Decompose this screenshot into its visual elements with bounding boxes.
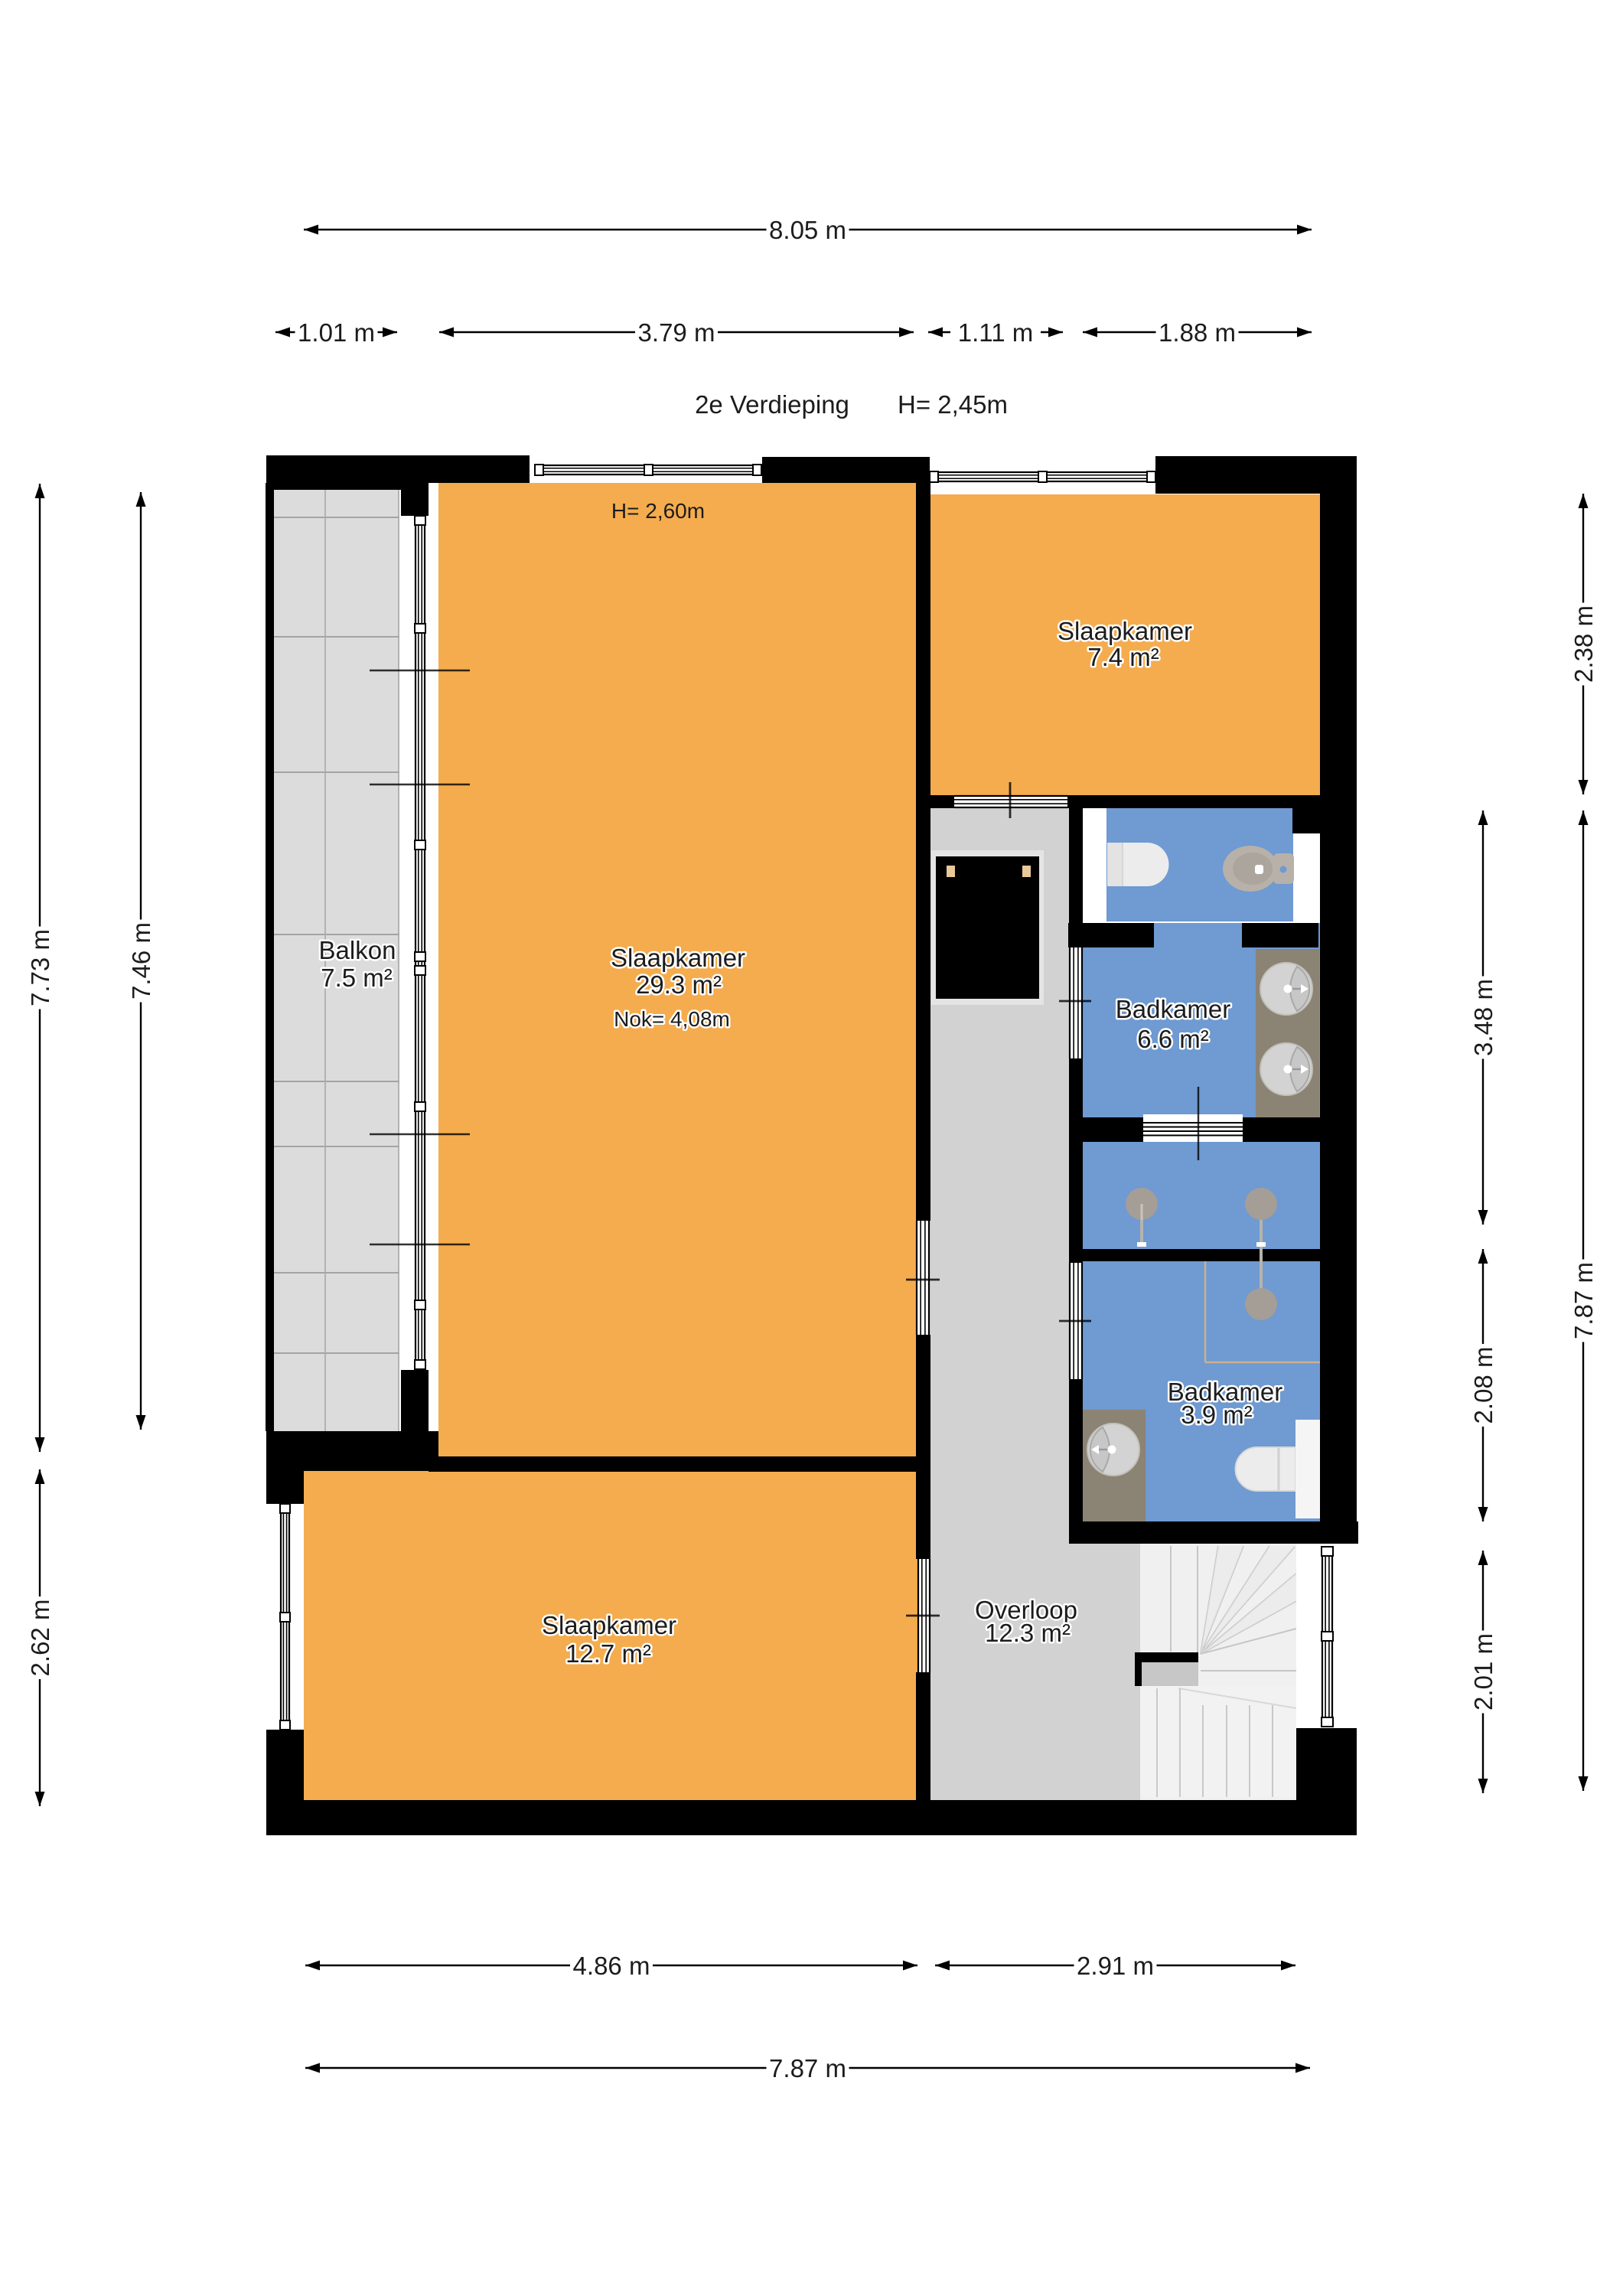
- svg-text:H= 2,60m: H= 2,60m: [611, 499, 705, 523]
- svg-text:Badkamer: Badkamer: [1116, 995, 1230, 1023]
- svg-text:7.87 m: 7.87 m: [769, 2054, 846, 2082]
- svg-text:3.79 m: 3.79 m: [638, 318, 715, 347]
- svg-text:7.5 m²: 7.5 m²: [321, 964, 393, 992]
- svg-text:3.48 m: 3.48 m: [1469, 979, 1498, 1056]
- svg-text:8.05 m: 8.05 m: [769, 216, 846, 244]
- svg-text:7.46 m: 7.46 m: [127, 922, 155, 1000]
- svg-text:1.88 m: 1.88 m: [1159, 318, 1236, 347]
- svg-text:7.87 m: 7.87 m: [1569, 1262, 1598, 1339]
- svg-text:H= 2,45m: H= 2,45m: [898, 390, 1008, 419]
- svg-text:Slaapkamer: Slaapkamer: [611, 944, 745, 972]
- svg-text:12.3 m²: 12.3 m²: [985, 1619, 1071, 1647]
- svg-text:Nok= 4,08m: Nok= 4,08m: [614, 1007, 730, 1031]
- svg-text:12.7 m²: 12.7 m²: [565, 1639, 651, 1668]
- svg-text:1.01 m: 1.01 m: [298, 318, 375, 347]
- svg-text:Slaapkamer: Slaapkamer: [1058, 617, 1192, 645]
- svg-text:2.38 m: 2.38 m: [1569, 605, 1598, 683]
- svg-text:1.11 m: 1.11 m: [958, 318, 1033, 347]
- svg-text:4.86 m: 4.86 m: [573, 1952, 650, 1980]
- svg-text:2.91 m: 2.91 m: [1077, 1952, 1154, 1980]
- svg-text:2.01 m: 2.01 m: [1469, 1633, 1498, 1711]
- svg-text:2.08 m: 2.08 m: [1469, 1347, 1498, 1424]
- svg-text:2e Verdieping: 2e Verdieping: [695, 390, 849, 419]
- svg-text:3.9 m²: 3.9 m²: [1181, 1401, 1253, 1429]
- svg-text:7.73 m: 7.73 m: [26, 929, 54, 1006]
- svg-text:Balkon: Balkon: [319, 936, 396, 964]
- svg-text:7.4 m²: 7.4 m²: [1087, 643, 1159, 671]
- svg-text:6.6 m²: 6.6 m²: [1137, 1025, 1209, 1053]
- svg-text:29.3 m²: 29.3 m²: [636, 970, 722, 999]
- svg-text:2.62 m: 2.62 m: [26, 1600, 54, 1677]
- svg-text:Slaapkamer: Slaapkamer: [542, 1611, 676, 1639]
